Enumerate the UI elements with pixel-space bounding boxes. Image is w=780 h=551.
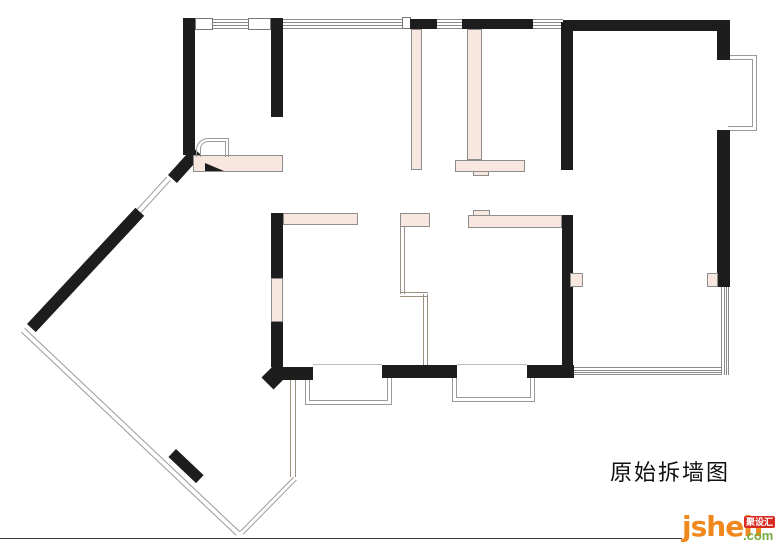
- wall-diagonal-main: [27, 208, 144, 332]
- wall-right-mid: [717, 130, 730, 287]
- window-jamb-2: [248, 18, 271, 30]
- plan-title: 原始拆墙图: [610, 455, 730, 487]
- bay-window-right: [729, 55, 757, 131]
- wall-top-right: [563, 20, 730, 31]
- partition-line-h: [400, 292, 428, 297]
- watermark-logo: jsheh 聚设汇 .com: [682, 511, 780, 551]
- window-top-4: [533, 19, 563, 29]
- door-frame-inner: [200, 141, 226, 157]
- balcony-glass-vertical: [290, 378, 296, 477]
- bay-window-right-inner: [728, 59, 753, 127]
- opening-edge-right: [457, 364, 527, 365]
- demolish-t-head: [455, 160, 525, 172]
- wall-center-left-upper: [271, 213, 283, 278]
- demolish-t-notch: [473, 171, 489, 176]
- bay-window-bottom-right: [452, 378, 535, 402]
- wall-bottom-right: [527, 365, 574, 378]
- wall-top-seg-b: [462, 19, 533, 29]
- wall-center-left-lower: [271, 322, 283, 367]
- demolish-mid-center-bar: [400, 213, 430, 227]
- balcony-glass-long: [21, 328, 240, 536]
- bay-window-bottom-left: [305, 378, 392, 405]
- demolish-mid-right-notch: [473, 210, 490, 216]
- window-top-3: [437, 19, 462, 29]
- wall-right-upper: [717, 31, 730, 60]
- demolish-mid-left-bar: [283, 213, 358, 225]
- demolish-top-left-pier: [411, 29, 422, 170]
- demolish-door-block-left: [570, 273, 583, 287]
- footer-rule: [0, 538, 682, 539]
- floor-plan-canvas: 原始拆墙图 jsheh 聚设汇 .com: [0, 0, 780, 551]
- demolish-mid-right-bar: [468, 215, 562, 228]
- balcony-glass-short: [240, 477, 297, 535]
- opening-edge-left: [313, 364, 382, 365]
- window-diagonal-door: [136, 177, 171, 214]
- demolish-top-right-pier: [467, 29, 482, 160]
- demolish-left-wall-segment: [271, 278, 283, 322]
- partition-line-v1: [400, 227, 405, 294]
- window-jamb-1: [195, 18, 213, 30]
- partition-line-v2: [423, 294, 428, 365]
- wall-right-room-left-upper: [561, 22, 573, 170]
- bay-window-bottom-right-inner: [456, 377, 531, 398]
- watermark-badge: 聚设汇: [744, 516, 775, 528]
- wall-right-room-left-lower: [562, 215, 573, 378]
- demolish-door-block-right: [707, 273, 718, 287]
- wall-bottom-mid: [382, 365, 457, 378]
- window-top-2: [283, 19, 403, 29]
- bay-window-bottom-left-inner: [309, 377, 388, 401]
- wall-top-seg-a: [410, 19, 437, 29]
- window-right-side: [721, 287, 729, 375]
- window-bottom-right: [573, 367, 721, 375]
- wall-top-mid-vertical: [271, 18, 283, 117]
- window-top-1: [213, 19, 248, 29]
- wall-left-upper: [183, 18, 195, 155]
- wall-balcony-stub: [168, 449, 203, 483]
- watermark-tld: .com: [743, 529, 773, 542]
